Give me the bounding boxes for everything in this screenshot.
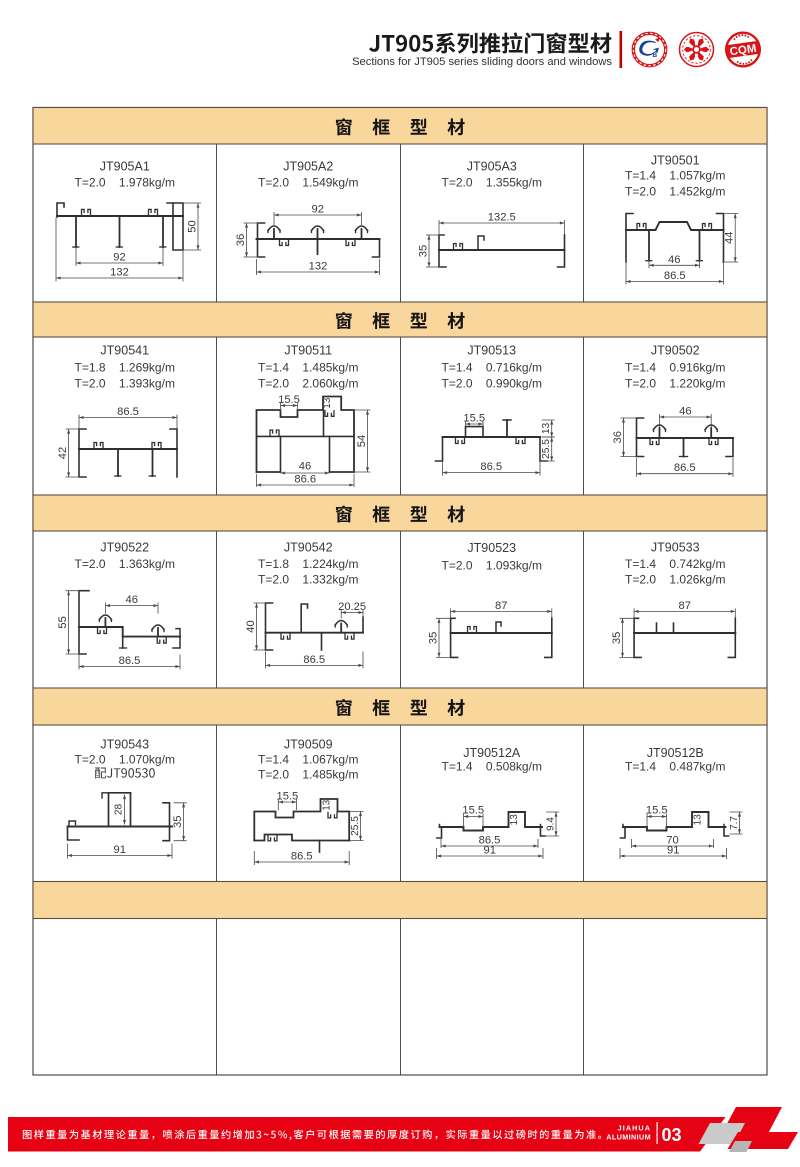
svg-text:T=2.0 1.363kg/m: T=2.0 1.363kg/m [75,557,175,571]
svg-text:T=1.4 0.916kg/m: T=1.4 0.916kg/m [625,361,725,375]
svg-text:13: 13 [322,397,333,409]
svg-text:B: B [653,52,658,59]
svg-text:35: 35 [418,245,430,257]
svg-text:25.5: 25.5 [350,816,361,836]
svg-text:46: 46 [679,406,691,418]
svg-text:T=1.4 1.485kg/m: T=1.4 1.485kg/m [258,361,358,375]
svg-text:JT905A1: JT905A1 [100,160,150,174]
svg-text:JT90543: JT90543 [100,738,149,752]
svg-text:86.5: 86.5 [480,461,502,473]
svg-text:54: 54 [356,435,368,447]
svg-text:42: 42 [57,447,69,459]
svg-text:JT90513: JT90513 [467,344,516,358]
svg-text:13: 13 [321,799,332,810]
svg-text:JT90512A: JT90512A [463,746,521,760]
svg-text:13: 13 [509,814,520,826]
svg-text:JT90501: JT90501 [651,154,700,168]
svg-text:132.5: 132.5 [488,212,516,224]
svg-text:T=2.0 1.026kg/m: T=2.0 1.026kg/m [625,573,725,587]
svg-text:T=2.0 1.549kg/m: T=2.0 1.549kg/m [258,176,358,190]
svg-text:T=2.0 0.990kg/m: T=2.0 0.990kg/m [442,377,542,391]
svg-text:35: 35 [428,632,440,644]
svg-text:T=1.4 1.067kg/m: T=1.4 1.067kg/m [258,753,358,767]
svg-text:87: 87 [495,600,507,612]
svg-text:T=2.0 2.060kg/m: T=2.0 2.060kg/m [258,377,358,391]
svg-text:91: 91 [114,844,126,856]
svg-text:86.5: 86.5 [119,655,141,667]
svg-text:T=2.0 1.070kg/m: T=2.0 1.070kg/m [75,753,175,767]
svg-text:87: 87 [678,600,690,612]
svg-text:46: 46 [125,594,137,606]
svg-text:46: 46 [299,461,311,473]
svg-text:T=1.8 1.269kg/m: T=1.8 1.269kg/m [75,361,175,375]
svg-text:T=2.0 1.393kg/m: T=2.0 1.393kg/m [75,377,175,391]
svg-text:JT90511: JT90511 [284,344,332,358]
svg-text:13: 13 [541,423,552,435]
svg-text:86.5: 86.5 [117,406,139,418]
svg-text:T=2.0 1.220kg/m: T=2.0 1.220kg/m [625,377,725,391]
svg-text:35: 35 [172,816,184,828]
svg-text:28: 28 [114,804,125,816]
svg-text:86.6: 86.6 [294,474,316,486]
svg-text:15.5: 15.5 [277,791,299,803]
svg-text:03: 03 [662,1125,682,1145]
svg-text:JT90502: JT90502 [651,344,700,358]
svg-text:40: 40 [245,620,257,632]
svg-text:35: 35 [611,632,623,644]
svg-text:JT90533: JT90533 [651,541,700,555]
svg-text:91: 91 [484,845,496,857]
svg-text:15.5: 15.5 [463,413,485,425]
svg-text:86.5: 86.5 [291,851,313,863]
svg-text:15.5: 15.5 [278,394,300,406]
svg-text:132: 132 [110,267,129,279]
svg-text:46: 46 [668,254,680,266]
svg-text:T=1.4 0.742kg/m: T=1.4 0.742kg/m [625,557,725,571]
svg-text:JT905A3: JT905A3 [467,160,517,174]
svg-text:T=2.0 1.485kg/m: T=2.0 1.485kg/m [258,768,358,782]
svg-text:36: 36 [612,431,624,443]
svg-text:T=2.0 1.978kg/m: T=2.0 1.978kg/m [75,176,175,190]
svg-text:36: 36 [235,234,247,246]
svg-text:JT90542: JT90542 [284,541,333,555]
svg-text:9.4: 9.4 [546,817,557,831]
svg-text:JT90522: JT90522 [100,541,149,555]
svg-text:86.5: 86.5 [664,270,686,282]
svg-text:JT90512B: JT90512B [647,746,704,760]
svg-text:15.5: 15.5 [462,805,484,817]
svg-text:T=1.4 1.057kg/m: T=1.4 1.057kg/m [625,169,725,183]
svg-text:13: 13 [692,814,703,826]
svg-text:T=2.0 1.355kg/m: T=2.0 1.355kg/m [442,176,542,190]
svg-text:55: 55 [57,616,69,628]
svg-text:JT90509: JT90509 [284,738,333,752]
svg-text:92: 92 [312,204,324,216]
svg-text:T=1.4 0.716kg/m: T=1.4 0.716kg/m [442,361,542,375]
svg-text:92: 92 [113,252,125,264]
svg-text:JIAHUA: JIAHUA [618,1124,651,1133]
svg-text:JT905A2: JT905A2 [283,160,333,174]
svg-text:T=1.4 0.508kg/m: T=1.4 0.508kg/m [442,760,542,774]
svg-text:86.5: 86.5 [674,462,696,474]
svg-text:JT90541: JT90541 [100,344,149,358]
svg-text:91: 91 [667,845,679,857]
svg-text:T=1.8 1.224kg/m: T=1.8 1.224kg/m [258,557,358,571]
svg-text:T=1.4 0.487kg/m: T=1.4 0.487kg/m [625,760,725,774]
svg-text:50: 50 [187,220,199,232]
svg-text:Sections for JT905 series: Sections for JT905 series sliding doors … [352,56,612,68]
svg-text:7.7: 7.7 [729,816,740,830]
svg-text:86.5: 86.5 [303,654,325,666]
svg-text:44: 44 [724,232,736,244]
svg-text:20.25: 20.25 [338,601,366,613]
svg-text:T=2.0 1.332kg/m: T=2.0 1.332kg/m [258,573,358,587]
svg-text:25.5: 25.5 [541,439,552,459]
svg-text:T=2.0 1.093kg/m: T=2.0 1.093kg/m [442,559,542,573]
svg-text:JT90523: JT90523 [467,541,516,555]
svg-text:T=2.0 1.452kg/m: T=2.0 1.452kg/m [625,185,725,199]
svg-text:132: 132 [309,261,328,273]
svg-text:15.5: 15.5 [646,805,668,817]
svg-text:ALUMINIUM: ALUMINIUM [606,1133,651,1142]
